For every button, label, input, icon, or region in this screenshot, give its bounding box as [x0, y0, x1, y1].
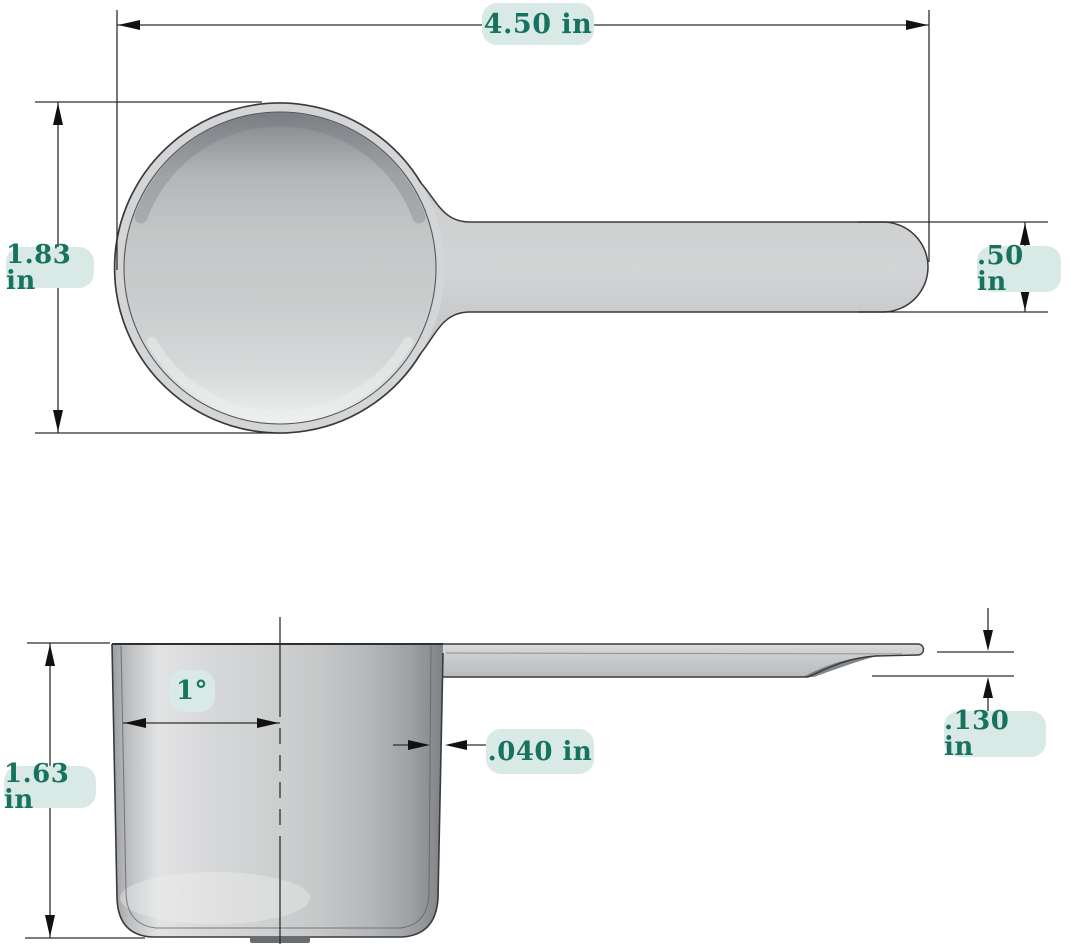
arrow-up-icon — [53, 103, 63, 125]
dim-value: 4.50 in — [484, 11, 593, 38]
scoop-side-view — [112, 644, 924, 943]
dim-value: .50 in — [977, 243, 1061, 295]
arrow-right-icon — [906, 20, 928, 30]
scoop-drawing-canvas — [0, 0, 1080, 946]
dim-value: 1° — [176, 678, 208, 704]
arrow-left-icon — [445, 740, 467, 750]
dim-value: .130 in — [944, 708, 1046, 760]
arrow-up-icon — [45, 644, 55, 666]
dim-label-bowl-diameter: 1.83 in — [6, 247, 94, 288]
arrow-down-icon — [983, 630, 993, 651]
arrow-left-icon — [118, 20, 140, 30]
technical-drawing-page: 4.50 in 1.83 in .50 in 1.63 in 1° .040 i… — [0, 0, 1080, 946]
dim-value: 1.83 in — [6, 242, 94, 294]
cup-bottom-highlight — [120, 872, 310, 924]
dim-label-handle-thickness: .130 in — [944, 711, 1046, 757]
arrow-down-icon — [45, 915, 55, 937]
dim-label-bowl-depth: 1.63 in — [4, 766, 96, 808]
dim-label-overall-length: 4.50 in — [482, 3, 594, 45]
dim-label-draft-angle: 1° — [169, 670, 215, 712]
dim-label-handle-width: .50 in — [977, 246, 1061, 292]
dim-value: 1.63 in — [4, 761, 96, 813]
dim-value: .040 in — [488, 739, 593, 765]
dim-label-wall-thickness: .040 in — [486, 729, 594, 774]
handle-top-view — [421, 183, 928, 353]
scoop-top-view — [115, 103, 928, 433]
arrow-down-icon — [53, 410, 63, 432]
arrow-up-icon — [983, 677, 993, 698]
